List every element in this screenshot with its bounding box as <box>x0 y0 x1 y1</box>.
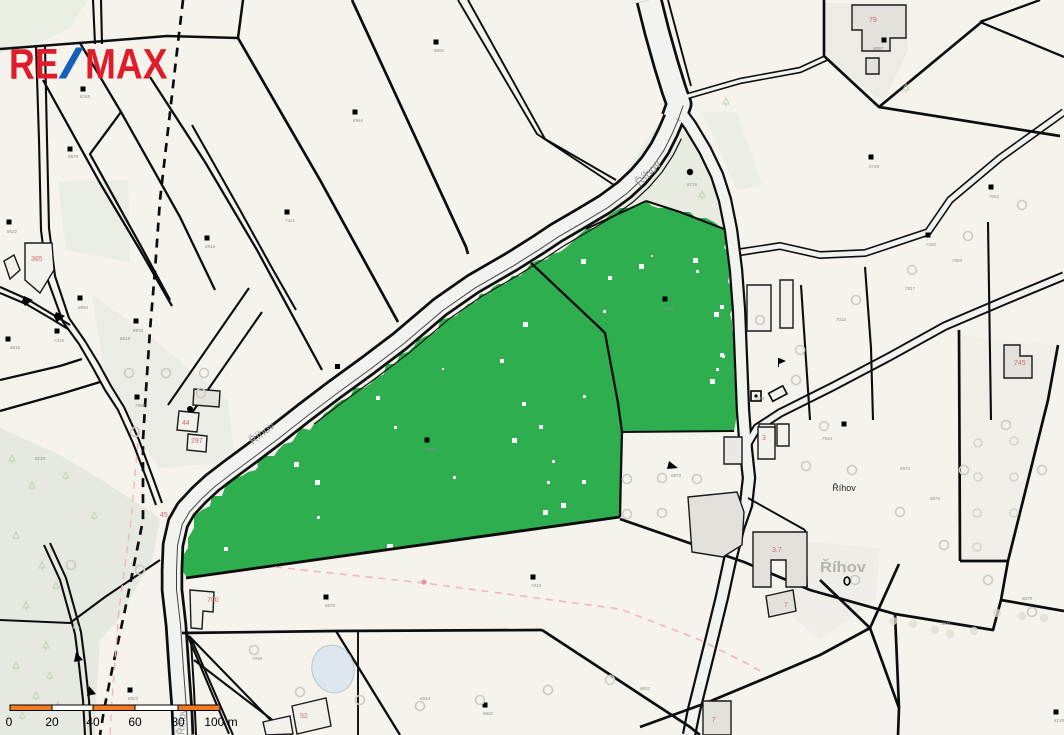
svg-text:7421: 7421 <box>285 218 296 223</box>
svg-text:100 m: 100 m <box>204 715 237 729</box>
svg-text:7583: 7583 <box>952 258 963 263</box>
svg-text:7234: 7234 <box>754 396 765 401</box>
svg-text:7032: 7032 <box>836 317 847 322</box>
svg-text:6914: 6914 <box>420 696 431 701</box>
svg-text:297: 297 <box>191 438 203 445</box>
svg-text:8602: 8602 <box>483 711 494 716</box>
svg-text:52: 52 <box>300 713 308 720</box>
svg-text:7: 7 <box>784 602 788 609</box>
svg-text:7550: 7550 <box>135 403 146 408</box>
svg-text:79: 79 <box>869 17 877 24</box>
svg-text:80: 80 <box>171 715 185 729</box>
svg-text:0: 0 <box>6 715 13 729</box>
svg-text:365: 365 <box>31 256 43 263</box>
svg-text:8897: 8897 <box>873 46 884 51</box>
svg-text:Říhov: Říhov <box>832 483 856 493</box>
svg-text:8879: 8879 <box>1022 596 1033 601</box>
svg-text:3: 3 <box>762 435 766 442</box>
svg-text:8615: 8615 <box>120 336 131 341</box>
svg-text:40: 40 <box>86 715 100 729</box>
svg-text:7934: 7934 <box>822 436 833 441</box>
svg-text:8923: 8923 <box>128 696 139 701</box>
svg-text:60: 60 <box>128 715 142 729</box>
svg-text:8739: 8739 <box>869 164 880 169</box>
svg-text:20: 20 <box>45 715 59 729</box>
svg-text:8249: 8249 <box>80 94 91 99</box>
svg-text:7059: 7059 <box>252 656 263 661</box>
svg-text:8916: 8916 <box>205 244 216 249</box>
svg-text:RE: RE <box>9 41 59 89</box>
svg-text:7379: 7379 <box>425 447 436 452</box>
svg-text:6816: 6816 <box>10 345 21 350</box>
svg-text:8133: 8133 <box>35 456 46 461</box>
svg-text:7505: 7505 <box>663 306 674 311</box>
svg-text:8135: 8135 <box>1054 718 1064 723</box>
svg-text:6876: 6876 <box>325 603 336 608</box>
svg-text:8652: 8652 <box>640 686 651 691</box>
svg-text:8891: 8891 <box>434 48 445 53</box>
svg-text:MAX: MAX <box>85 41 168 89</box>
svg-text:745: 745 <box>1014 360 1026 367</box>
svg-text:7052: 7052 <box>989 194 1000 199</box>
svg-text:7292: 7292 <box>926 242 937 247</box>
svg-text:7200: 7200 <box>940 621 951 626</box>
svg-text:Říhov: Říhov <box>820 558 867 576</box>
svg-text:8870: 8870 <box>930 496 941 501</box>
svg-text:8978: 8978 <box>133 328 144 333</box>
svg-text:45: 45 <box>160 512 168 519</box>
svg-text:3.7: 3.7 <box>772 547 782 554</box>
svg-text:6972: 6972 <box>900 466 911 471</box>
svg-text:8676: 8676 <box>68 154 79 159</box>
svg-text:700: 700 <box>207 597 219 604</box>
svg-text:8776: 8776 <box>687 182 698 187</box>
svg-text:8944: 8944 <box>353 118 364 123</box>
svg-text:7817: 7817 <box>905 286 916 291</box>
svg-text:7335: 7335 <box>54 338 65 343</box>
svg-text:8973: 8973 <box>671 473 682 478</box>
svg-text:44: 44 <box>182 420 190 427</box>
svg-text:8522: 8522 <box>7 229 18 234</box>
svg-text:7413: 7413 <box>531 583 542 588</box>
svg-text:7: 7 <box>712 717 716 724</box>
svg-text:8854: 8854 <box>78 305 89 310</box>
